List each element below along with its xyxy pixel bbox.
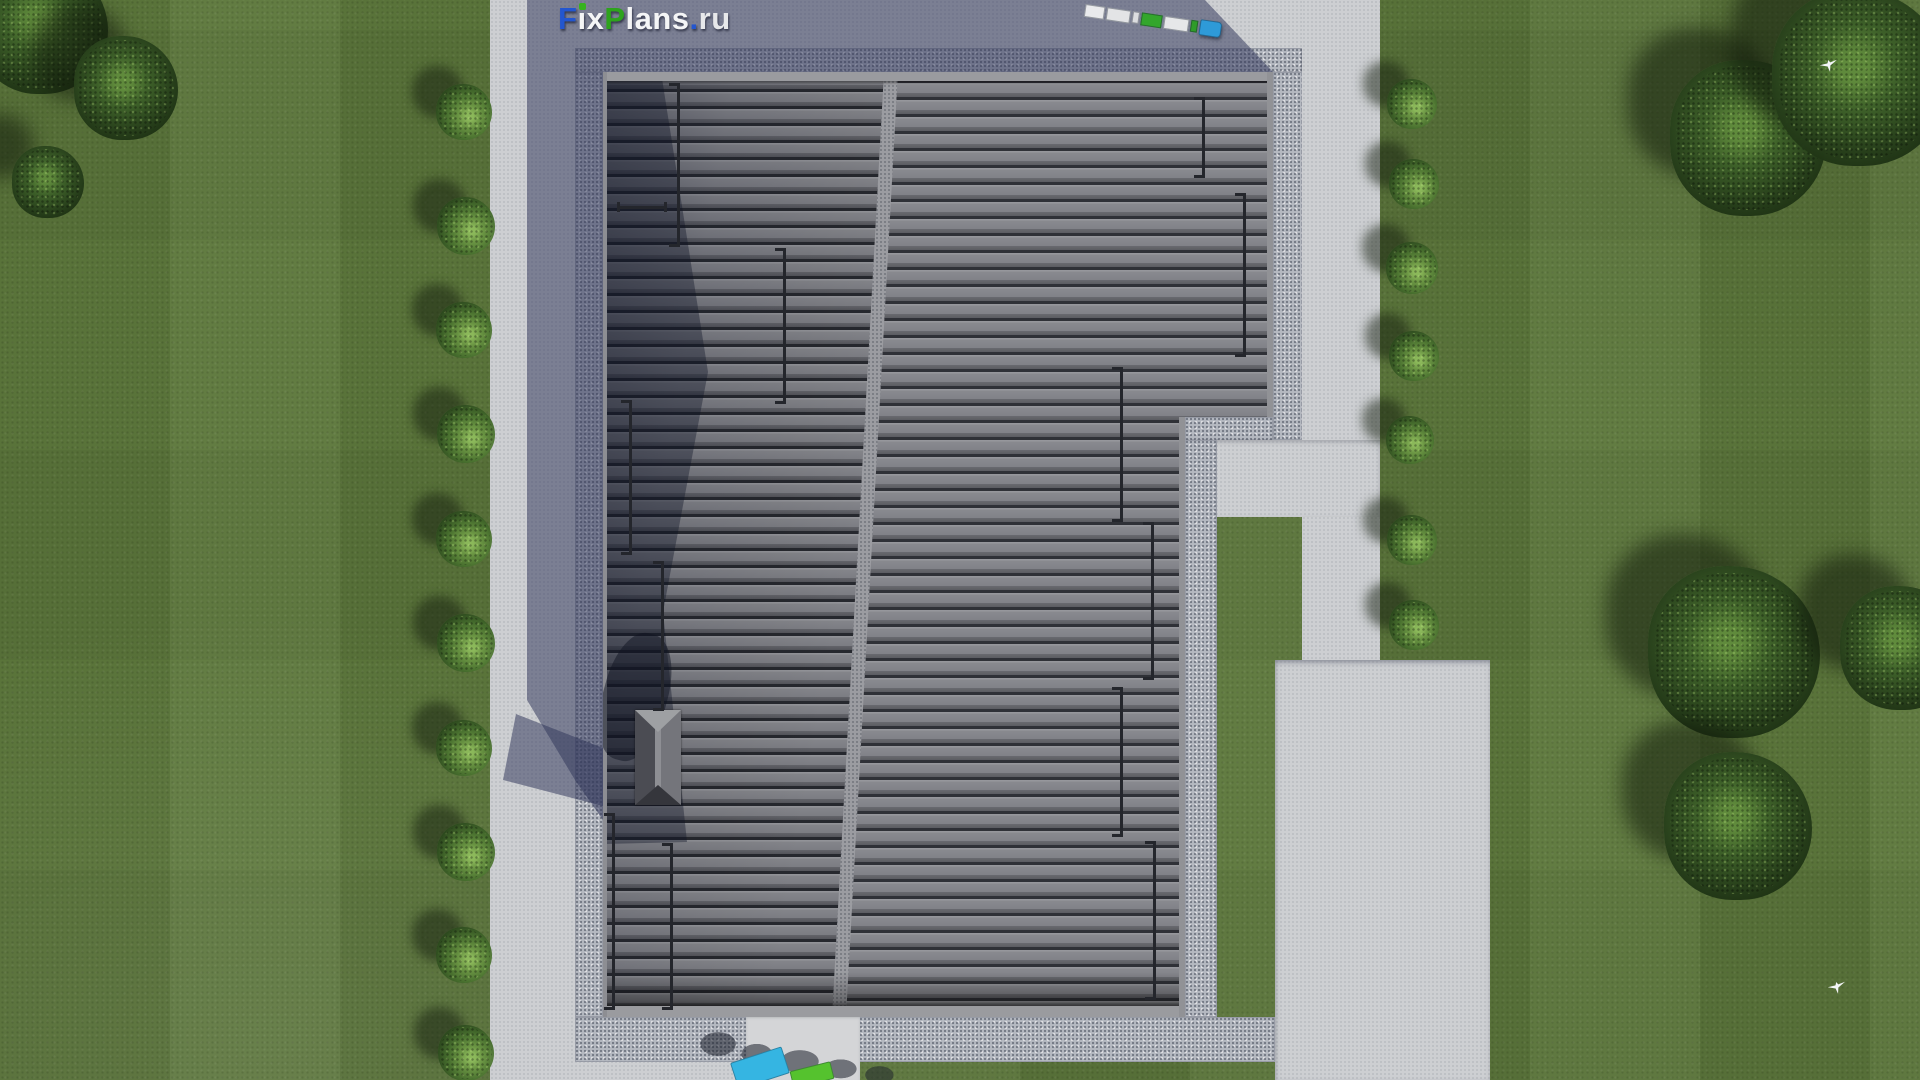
concrete-path-right	[1302, 0, 1380, 660]
bush	[1386, 242, 1438, 294]
roof-fascia-top	[603, 72, 1273, 81]
logo-letter: ı	[577, 1, 586, 37]
bush	[1386, 416, 1434, 464]
roof-rail	[617, 206, 667, 209]
gravel-band-step	[1185, 417, 1273, 440]
truck-segment	[1084, 3, 1106, 19]
bush	[436, 84, 492, 140]
bush	[1389, 331, 1439, 381]
roof-rail	[612, 813, 615, 1010]
fixplans-logo[interactable]: FıxPlans.ru	[558, 1, 731, 37]
aerial-site-render: FıxPlans.ru	[0, 0, 1920, 1080]
bush	[1389, 159, 1439, 209]
bush	[436, 720, 492, 776]
tree	[74, 36, 178, 140]
bush	[436, 511, 492, 567]
bush	[438, 1025, 494, 1080]
truck-segment	[1163, 15, 1190, 32]
bush	[1389, 600, 1439, 650]
logo-letter: x	[587, 1, 605, 37]
logo-letter: F	[558, 1, 577, 37]
bush	[1387, 515, 1437, 565]
tree	[1664, 752, 1812, 900]
chimney	[635, 710, 681, 805]
bush	[436, 927, 492, 983]
roof-edge-left	[603, 72, 607, 1017]
logo-letter: .	[690, 1, 699, 37]
roof-rail	[629, 400, 632, 555]
logo-i-dot-icon	[579, 3, 586, 10]
gravel-band-right-lower	[1185, 440, 1217, 1017]
eave-shadow	[603, 972, 1273, 1006]
gravel-band-top	[575, 48, 1302, 72]
logo-letter: ru	[699, 1, 731, 37]
roof-rail	[1243, 193, 1246, 357]
gravel-band-left	[575, 72, 603, 1017]
truck-segment	[1198, 19, 1222, 38]
logo-letter: P	[604, 1, 625, 37]
bush	[437, 197, 495, 255]
roof-edge-right-upper	[1267, 72, 1273, 417]
roof-rail	[1153, 841, 1156, 1000]
house-roof	[603, 72, 1273, 1017]
roof-rail	[670, 843, 673, 1010]
gravel-band-bottom	[575, 1017, 1275, 1062]
tree	[12, 146, 84, 218]
tree	[1772, 0, 1920, 166]
truck-segment	[1140, 12, 1163, 28]
truck-segment	[1106, 7, 1132, 23]
roof-rail	[1202, 97, 1205, 178]
roof-edge-right-lower	[1179, 417, 1185, 1017]
logo-letter: lans	[626, 1, 690, 37]
truck-segment	[1190, 20, 1199, 33]
gravel-band-right-upper	[1273, 72, 1302, 440]
bush	[437, 823, 495, 881]
roof-rail	[661, 561, 664, 711]
bush	[436, 302, 492, 358]
bush	[1387, 79, 1437, 129]
roof-rail	[1120, 687, 1123, 837]
roof-fascia-bottom	[603, 1006, 1273, 1017]
roof-rail	[783, 248, 786, 404]
bush	[437, 405, 495, 463]
bush	[437, 614, 495, 672]
roof-rail	[1151, 522, 1154, 680]
roof-rail	[677, 83, 680, 247]
roof-rail	[1120, 367, 1123, 522]
truck-segment	[1131, 11, 1140, 24]
tree	[1648, 566, 1820, 738]
concrete-terrace-pad	[1275, 660, 1490, 1080]
